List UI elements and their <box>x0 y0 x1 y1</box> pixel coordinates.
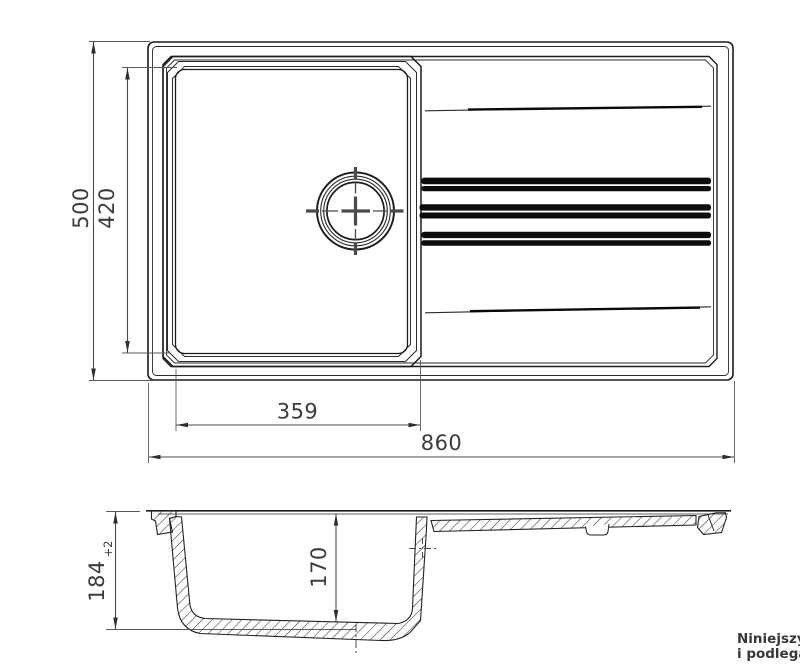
footer-note-line1: Niniejszy <box>737 631 800 647</box>
drainboard-ridges <box>420 178 712 246</box>
basin-bowl-inner-edge <box>176 70 408 354</box>
deck-recess-inner <box>167 60 714 363</box>
plan-view: 500 420 359 860 <box>69 42 735 464</box>
ridge-bar <box>420 213 712 219</box>
dim-label-184-tolerance: +2 <box>101 541 115 558</box>
dimension-420: 420 <box>95 68 177 354</box>
drainboard <box>420 106 712 313</box>
footer-note-line2: i podlega <box>737 646 800 662</box>
dim-label-420: 420 <box>95 187 119 229</box>
deck-recess-outer <box>163 57 717 367</box>
dim-label-860: 860 <box>421 431 463 455</box>
sink-inner-edge <box>153 47 729 376</box>
dim-label-170: 170 <box>307 546 331 588</box>
ridge-bar <box>422 178 712 185</box>
drainboard-groove-top-dark <box>468 107 702 110</box>
drain-hole <box>306 167 404 255</box>
section-deck-strip <box>431 516 696 532</box>
technical-drawing-canvas: 500 420 359 860 <box>0 0 800 668</box>
ridge-bar <box>422 240 712 246</box>
section-right-edge <box>698 513 727 535</box>
drainboard-groove-bottom-dark <box>470 308 700 312</box>
section-basin-walls <box>170 517 428 641</box>
dim-label-359: 359 <box>277 400 319 424</box>
ridge-bar <box>422 186 712 191</box>
dimension-359: 359 <box>176 360 421 431</box>
ridge-bar <box>422 232 712 238</box>
dimension-170: 170 <box>307 514 336 622</box>
sink-outer-edge <box>148 42 733 380</box>
dim-label-184: 184 <box>85 560 109 602</box>
section-view: 184 +2 170 <box>85 511 731 653</box>
dimension-860: 860 <box>149 381 735 463</box>
footer-note: Niniejszy i podlega <box>737 631 800 662</box>
dim-label-500: 500 <box>69 187 93 229</box>
sink-technical-drawing: 500 420 359 860 <box>0 0 800 668</box>
ridge-bar <box>420 204 712 210</box>
